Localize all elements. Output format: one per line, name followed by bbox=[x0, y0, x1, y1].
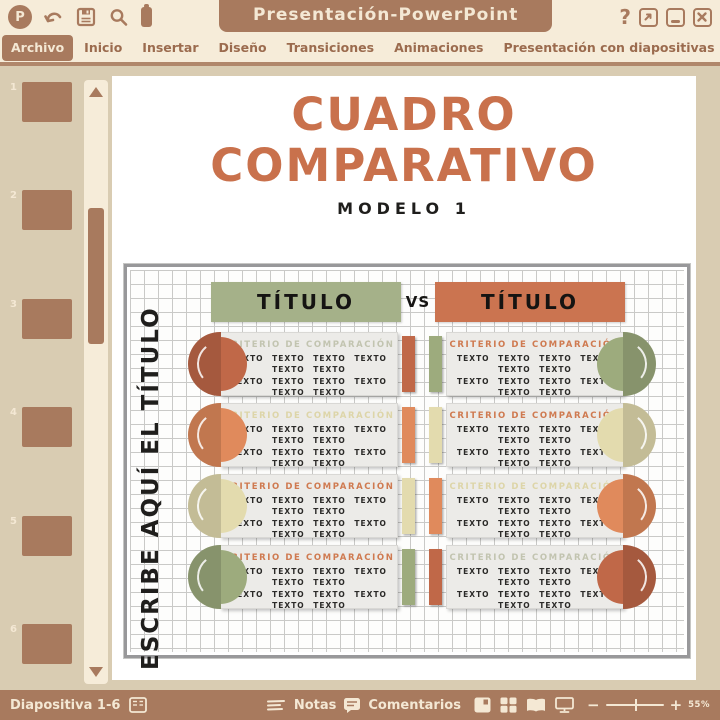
accent-bar bbox=[402, 478, 415, 534]
accent-circle bbox=[597, 550, 651, 604]
criteria-heading: CRITERIO DE COMPARACIÓN bbox=[447, 411, 623, 421]
criteria-text-line: TEXTO TEXTO TEXTO TEXTO TEXTO TEXTO bbox=[221, 495, 397, 518]
criteria-heading: CRITERIO DE COMPARACIÓN bbox=[221, 340, 397, 350]
slide-thumbnail-number: 2 bbox=[10, 190, 18, 230]
criteria-text-line: TEXTO TEXTO TEXTO TEXTO TEXTO TEXTO bbox=[221, 566, 397, 589]
slide-thumbnail-number: 4 bbox=[10, 407, 18, 447]
titlebar: P bbox=[0, 0, 720, 34]
workspace: 123456 CUADRO COMPARATIVO MODELO 1 TÍTUL… bbox=[0, 66, 720, 690]
zoom-percentage: 55% bbox=[688, 700, 710, 710]
scroll-down-arrow[interactable] bbox=[88, 666, 104, 678]
search-icon[interactable] bbox=[108, 7, 129, 28]
close-icon[interactable] bbox=[693, 8, 712, 27]
slide-thumbnail-number: 5 bbox=[10, 516, 18, 556]
criteria-body: TEXTO TEXTO TEXTO TEXTO TEXTO TEXTOTEXTO… bbox=[221, 495, 397, 538]
accent-circle bbox=[193, 479, 247, 533]
comparison-row-1: CRITERIO DE COMPARACIÓNTEXTO TEXTO TEXTO… bbox=[220, 332, 624, 396]
vertical-title-label[interactable]: ESCRIBE AQUÍ EL TÍTULO bbox=[138, 325, 172, 670]
menu-item-insertar[interactable]: Insertar bbox=[133, 35, 207, 61]
criteria-body: TEXTO TEXTO TEXTO TEXTO TEXTO TEXTOTEXTO… bbox=[221, 353, 397, 396]
accent-circle bbox=[597, 408, 651, 462]
accent-circle bbox=[193, 337, 247, 391]
criteria-heading: CRITERIO DE COMPARACIÓN bbox=[221, 411, 397, 421]
criteria-text-line: TEXTO TEXTO TEXTO TEXTO TEXTO TEXTO bbox=[221, 447, 397, 468]
slide-thumbnail-preview[interactable] bbox=[22, 82, 72, 122]
slide-counter: Diapositiva 1-6 bbox=[10, 698, 120, 713]
right-title-box[interactable]: TÍTULO bbox=[435, 282, 625, 322]
criteria-text-line: TEXTO TEXTO TEXTO TEXTO TEXTO TEXTO bbox=[221, 353, 397, 376]
menubar: ArchivoInicioInsertarDiseñoTransicionesA… bbox=[0, 34, 720, 62]
accent-bar bbox=[402, 549, 415, 605]
app-title: Presentación-PowerPoint bbox=[219, 0, 552, 32]
slide-canvas[interactable]: CUADRO COMPARATIVO MODELO 1 TÍTULO VS TÍ… bbox=[112, 76, 696, 680]
comparison-rows: CRITERIO DE COMPARACIÓNTEXTO TEXTO TEXTO… bbox=[220, 332, 624, 616]
slide-title-line2: COMPARATIVO bbox=[112, 141, 696, 192]
zoom-controls: − + 55% bbox=[587, 698, 710, 713]
accent-bar bbox=[429, 407, 442, 463]
accent-bar bbox=[402, 407, 415, 463]
criteria-heading: CRITERIO DE COMPARACIÓN bbox=[221, 553, 397, 563]
accent-circle bbox=[193, 408, 247, 462]
slide-thumbnail-preview[interactable] bbox=[22, 624, 72, 664]
slide-thumbnail-preview[interactable] bbox=[22, 407, 72, 447]
scrollbar-thumb[interactable] bbox=[88, 208, 104, 344]
slide-thumbnail-number: 1 bbox=[10, 82, 18, 122]
slide-thumbnails-panel: 123456 bbox=[0, 66, 110, 690]
menu-item-inicio[interactable]: Inicio bbox=[75, 35, 131, 61]
titlebar-left-icons: P bbox=[8, 5, 152, 29]
view-buttons-group bbox=[474, 697, 574, 713]
criteria-text-line: TEXTO TEXTO TEXTO TEXTO TEXTO TEXTO bbox=[221, 424, 397, 447]
app-window: P bbox=[0, 0, 720, 720]
criteria-heading: CRITERIO DE COMPARACIÓN bbox=[447, 482, 623, 492]
criteria-text-line: TEXTO TEXTO TEXTO TEXTO TEXTO TEXTO bbox=[221, 376, 397, 397]
slide-subtitle[interactable]: MODELO 1 bbox=[112, 199, 696, 218]
criteria-text-line: TEXTO TEXTO TEXTO TEXTO TEXTO TEXTO bbox=[221, 589, 397, 610]
notes-comments-group: Notas Comentarios bbox=[267, 697, 461, 713]
criteria-text-line: TEXTO TEXTO TEXTO TEXTO TEXTO TEXTO bbox=[447, 518, 623, 539]
accent-circle bbox=[193, 550, 247, 604]
criteria-heading: CRITERIO DE COMPARACIÓN bbox=[447, 553, 623, 563]
menu-item-presentaci-n-con-diapositivas[interactable]: Presentación con diapositivas bbox=[495, 35, 720, 61]
slideshow-view-icon[interactable] bbox=[555, 697, 574, 713]
vs-label: VS bbox=[401, 282, 435, 322]
menu-item-transiciones[interactable]: Transiciones bbox=[278, 35, 383, 61]
criteria-text-line: TEXTO TEXTO TEXTO TEXTO TEXTO TEXTO bbox=[447, 376, 623, 397]
notes-lines-icon[interactable] bbox=[267, 699, 287, 711]
criteria-body: TEXTO TEXTO TEXTO TEXTO TEXTO TEXTOTEXTO… bbox=[221, 424, 397, 467]
accent-bar bbox=[429, 336, 442, 392]
share-icon[interactable] bbox=[639, 8, 658, 27]
help-icon[interactable]: ? bbox=[619, 5, 631, 29]
slide-thumbnail-2[interactable]: 2 bbox=[10, 190, 76, 230]
comparison-chart-grid: TÍTULO VS TÍTULO ESCRIBE AQUÍ EL TÍTULO … bbox=[130, 270, 684, 652]
notes-button[interactable]: Notas bbox=[294, 698, 337, 713]
slide-thumbnail-preview[interactable] bbox=[22, 190, 72, 230]
clipboard-icon[interactable] bbox=[141, 7, 152, 27]
save-icon[interactable] bbox=[76, 7, 96, 27]
reading-view-icon[interactable] bbox=[526, 698, 546, 713]
accent-bar bbox=[429, 549, 442, 605]
criteria-heading: CRITERIO DE COMPARACIÓN bbox=[221, 482, 397, 492]
statusbar: Diapositiva 1-6 Notas bbox=[0, 690, 720, 720]
slide-thumbnail-preview[interactable] bbox=[22, 516, 72, 556]
slide-thumbnail-6[interactable]: 6 bbox=[10, 624, 76, 664]
criteria-text-line: TEXTO TEXTO TEXTO TEXTO TEXTO TEXTO bbox=[221, 518, 397, 539]
normal-view-icon[interactable] bbox=[474, 697, 491, 713]
comment-icon[interactable] bbox=[343, 697, 361, 713]
slide-title-line1: CUADRO bbox=[112, 90, 696, 141]
zoom-in-button[interactable]: + bbox=[670, 698, 683, 713]
accent-bar bbox=[429, 478, 442, 534]
undo-icon[interactable] bbox=[44, 8, 64, 26]
slide-thumbnail-3[interactable]: 3 bbox=[10, 299, 76, 339]
comparison-row-3: CRITERIO DE COMPARACIÓNTEXTO TEXTO TEXTO… bbox=[220, 474, 624, 538]
comparison-chart[interactable]: TÍTULO VS TÍTULO ESCRIBE AQUÍ EL TÍTULO … bbox=[124, 264, 690, 658]
criteria-heading: CRITERIO DE COMPARACIÓN bbox=[447, 340, 623, 350]
titlebar-right-icons: ? bbox=[619, 5, 712, 29]
zoom-slider[interactable] bbox=[606, 704, 664, 707]
slide-thumbnail-number: 6 bbox=[10, 624, 18, 664]
slide-thumbnail-number: 3 bbox=[10, 299, 18, 339]
accent-circle bbox=[597, 479, 651, 533]
comparison-row-2: CRITERIO DE COMPARACIÓNTEXTO TEXTO TEXTO… bbox=[220, 403, 624, 467]
slide-layout-icon[interactable] bbox=[129, 697, 147, 713]
comparison-row-4: CRITERIO DE COMPARACIÓNTEXTO TEXTO TEXTO… bbox=[220, 545, 624, 609]
menu-item-archivo[interactable]: Archivo bbox=[2, 35, 73, 61]
menu-item-animaciones[interactable]: Animaciones bbox=[385, 35, 492, 61]
slide-title[interactable]: CUADRO COMPARATIVO bbox=[112, 90, 696, 192]
criteria-text-line: TEXTO TEXTO TEXTO TEXTO TEXTO TEXTO bbox=[447, 589, 623, 610]
left-title-box[interactable]: TÍTULO bbox=[211, 282, 401, 322]
grid-view-icon[interactable] bbox=[500, 697, 517, 713]
slide-thumbnail-1[interactable]: 1 bbox=[10, 82, 76, 122]
slide-thumbnail-preview[interactable] bbox=[22, 299, 72, 339]
accent-bar bbox=[402, 336, 415, 392]
zoom-slider-thumb[interactable] bbox=[635, 699, 638, 711]
scroll-up-arrow[interactable] bbox=[88, 86, 104, 98]
thumbnail-list: 123456 bbox=[10, 82, 76, 664]
criteria-text-line: TEXTO TEXTO TEXTO TEXTO TEXTO TEXTO bbox=[447, 447, 623, 468]
slide-thumbnail-5[interactable]: 5 bbox=[10, 516, 76, 556]
scrollbar[interactable] bbox=[84, 80, 108, 684]
comments-button[interactable]: Comentarios bbox=[368, 698, 461, 713]
accent-circle bbox=[597, 337, 651, 391]
zoom-out-button[interactable]: − bbox=[587, 698, 600, 713]
criteria-body: TEXTO TEXTO TEXTO TEXTO TEXTO TEXTOTEXTO… bbox=[221, 566, 397, 609]
menu-item-dise-o[interactable]: Diseño bbox=[210, 35, 276, 61]
slide-thumbnail-4[interactable]: 4 bbox=[10, 407, 76, 447]
minimize-icon[interactable] bbox=[666, 8, 685, 27]
powerpoint-logo-icon[interactable]: P bbox=[8, 5, 32, 29]
